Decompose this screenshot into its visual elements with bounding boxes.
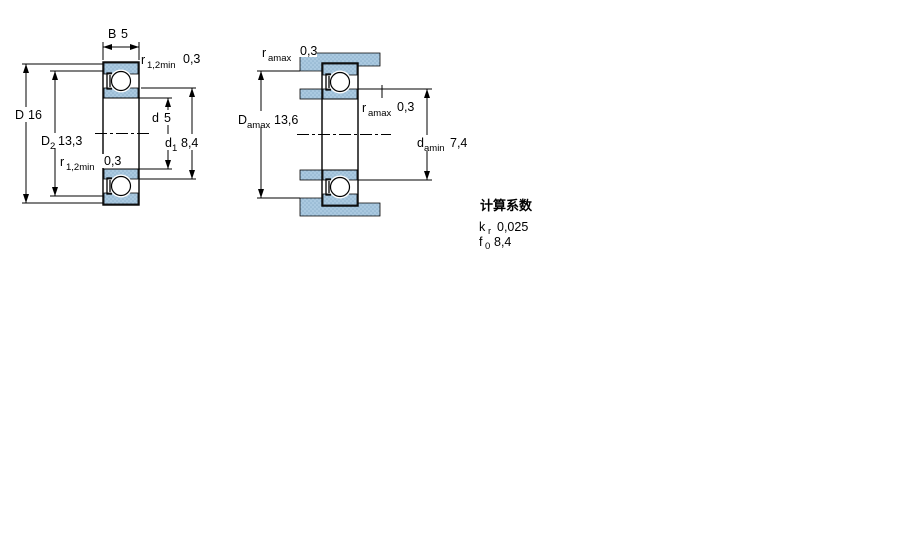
label-r12-top-sub: 1,2min	[147, 60, 176, 71]
calculation-factors: 计算系数 k r 0,025 f 0 8,4	[479, 198, 533, 252]
shaft-shoulder-bottom	[300, 170, 322, 180]
bearing-drawing-page: B 5 r 1,2min 0,3 D 16 D 2 13,3 r 1,2min …	[0, 0, 900, 560]
factor-kr-sub: r	[488, 226, 491, 237]
label-D2-symbol: D	[41, 134, 50, 148]
ext-lines-B	[103, 42, 139, 60]
label-da-sub: amin	[424, 143, 445, 154]
main-cross-section: B 5 r 1,2min 0,3 D 16 D 2 13,3 r 1,2min …	[13, 27, 211, 205]
label-r12-top-value: 0,3	[183, 52, 200, 66]
label-da-symbol: d	[417, 136, 424, 150]
calculation-factors-heading: 计算系数	[480, 198, 533, 213]
factor-f0-sub: 0	[485, 241, 490, 252]
label-r12-mid-symbol: r	[60, 155, 64, 169]
ball-top	[331, 73, 350, 92]
label-D-symbol: D	[15, 108, 24, 122]
label-r12-mid-value: 0,3	[104, 154, 121, 168]
ball-bottom	[112, 177, 131, 196]
label-B-symbol: B	[108, 27, 116, 41]
label-Da-symbol: D	[238, 113, 247, 127]
factor-f0-value: 8,4	[494, 235, 511, 249]
ball-top	[112, 72, 131, 91]
label-ra-top-symbol: r	[262, 46, 266, 60]
label-r12-mid-sub: 1,2min	[66, 162, 95, 173]
label-Da-sub: amax	[247, 120, 270, 131]
label-ra-mid-sub: amax	[368, 108, 391, 119]
bearing-dimension-diagram: B 5 r 1,2min 0,3 D 16 D 2 13,3 r 1,2min …	[0, 0, 900, 560]
ext-lines-Da	[257, 71, 300, 198]
factor-kr-symbol: k	[479, 220, 486, 234]
label-d1-value: 8,4	[181, 136, 198, 150]
shaft-shoulder-top	[300, 89, 322, 99]
label-D2-value: 13,3	[58, 134, 82, 148]
label-d1-symbol: d	[165, 136, 172, 150]
label-da-value: 7,4	[450, 136, 467, 150]
label-ra-top-value: 0,3	[300, 44, 317, 58]
label-d1-sub: 1	[172, 143, 177, 154]
label-d-value: 5	[164, 111, 171, 125]
label-r12-top-symbol: r	[141, 53, 145, 67]
label-ra-mid-value: 0,3	[397, 100, 414, 114]
factor-f0-symbol: f	[479, 235, 483, 249]
label-ra-top-sub: amax	[268, 53, 291, 64]
label-D2-sub: 2	[50, 141, 55, 152]
label-Da-value: 13,6	[274, 113, 298, 127]
label-D-value: 16	[28, 108, 42, 122]
abutment-cross-section: r amax 0,3 D amax 13,6 r amax 0,3 d amin…	[236, 43, 470, 216]
label-d-symbol: d	[152, 111, 159, 125]
factor-kr-value: 0,025	[497, 220, 528, 234]
label-B-value: 5	[121, 27, 128, 41]
label-ra-mid-symbol: r	[362, 101, 366, 115]
ball-bottom	[331, 178, 350, 197]
